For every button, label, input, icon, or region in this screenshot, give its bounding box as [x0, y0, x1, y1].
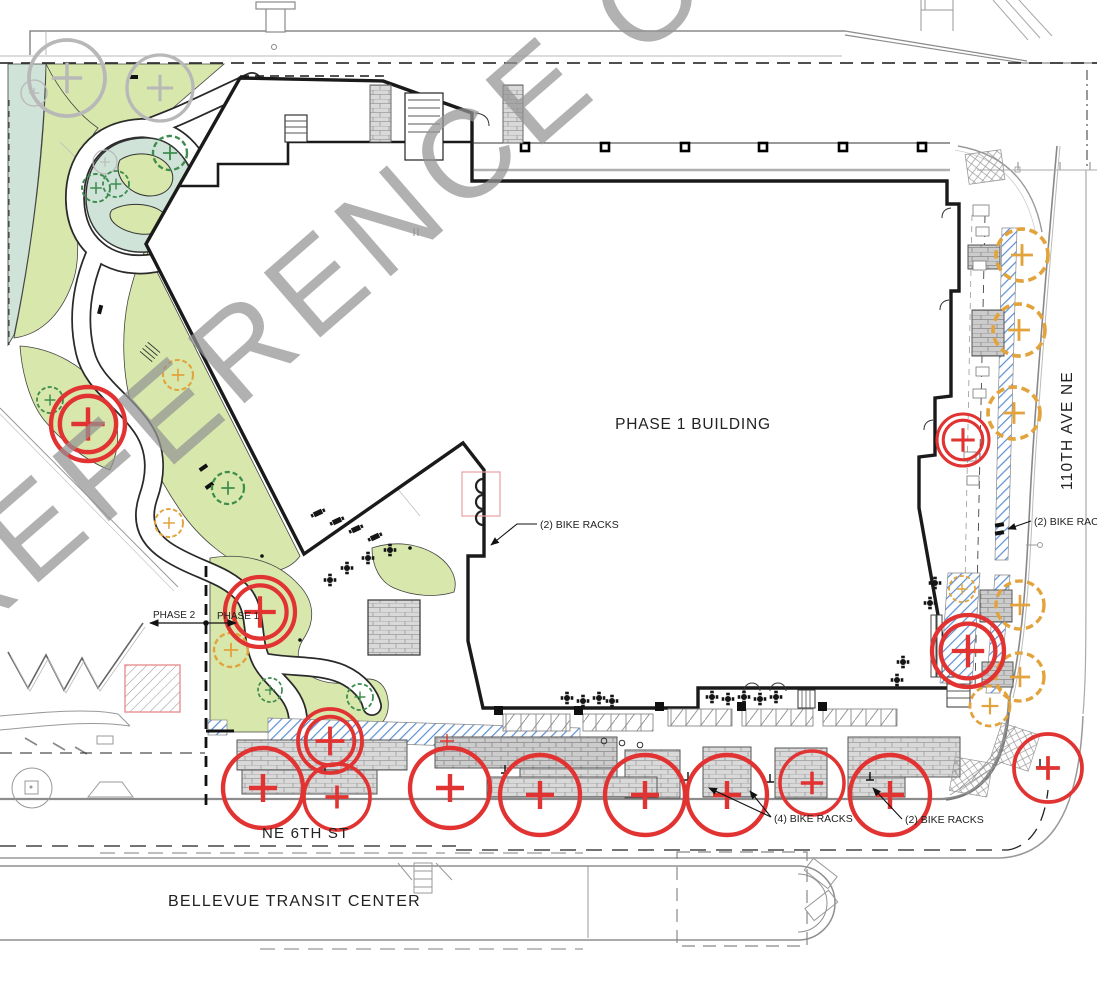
phase1-label: PHASE 1	[217, 611, 260, 622]
bike-racks-east-label: (2) BIKE RACKS	[1034, 516, 1097, 528]
bike-racks-south2-label: (2) BIKE RACKS	[905, 814, 984, 826]
transit-center-label: BELLEVUE TRANSIT CENTER	[168, 893, 421, 910]
bike-racks-south4-label: (4) BIKE RACKS	[774, 813, 853, 825]
building-label: PHASE 1 BUILDING	[615, 416, 771, 433]
leader-bike-east	[1008, 521, 1031, 529]
bike-racks-west-label: (2) BIKE RACKS	[540, 519, 619, 531]
110th-ave-label: 110TH AVE NE	[1059, 371, 1076, 490]
ne-6th-st-label: NE 6TH ST	[262, 825, 349, 842]
site-plan-canvas: PHASE 1 BUILDING	[0, 0, 1097, 987]
site-plan-drawing: PHASE 1 BUILDING	[0, 0, 1097, 987]
phase2-label: PHASE 2	[153, 610, 196, 621]
